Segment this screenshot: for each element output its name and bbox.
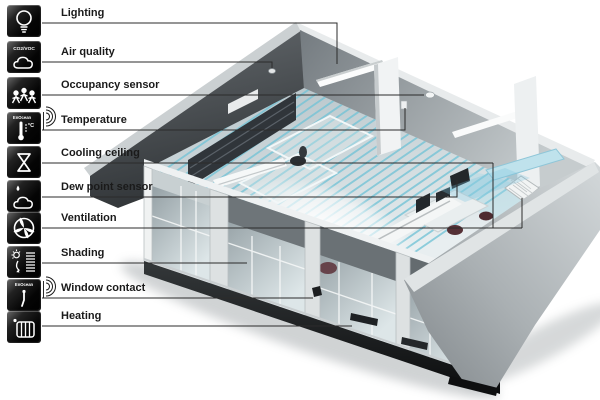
legend-tile-occupancy bbox=[7, 77, 41, 109]
legend-tile-temperature: EnOcean °C bbox=[7, 112, 41, 144]
legend-label-dew-point: Dew point sensor bbox=[61, 181, 153, 193]
legend-label-occupancy: Occupancy sensor bbox=[61, 79, 159, 91]
legend-tile-heating bbox=[7, 311, 41, 343]
legend-tile-ventilation bbox=[7, 212, 41, 244]
legend-tile-air-quality: CO2/VOC bbox=[7, 41, 41, 73]
legend-label-ventilation: Ventilation bbox=[61, 212, 117, 224]
thermostat bbox=[401, 101, 407, 109]
shading-blinds-icon bbox=[7, 246, 41, 278]
legend-label-window-contact: Window contact bbox=[61, 282, 145, 294]
legend-label-cooling-ceiling: Cooling ceiling bbox=[61, 147, 140, 159]
red-chair-behind-glass bbox=[319, 262, 337, 274]
radiator-icon bbox=[7, 311, 41, 343]
legend-label-temperature: Temperature bbox=[61, 114, 127, 126]
occupancy-people-icon bbox=[7, 77, 41, 109]
svg-text:EnOcean: EnOcean bbox=[13, 115, 32, 120]
wireless-icons bbox=[46, 107, 56, 296]
legend-label-heating: Heating bbox=[61, 310, 101, 322]
svg-text:CO2/VOC: CO2/VOC bbox=[13, 46, 35, 52]
legend-tile-lighting bbox=[7, 5, 41, 37]
air-quality-sensor-dot bbox=[269, 69, 276, 74]
room-render bbox=[0, 0, 600, 400]
legend-tile-shading bbox=[7, 246, 41, 278]
legend-tile-dew-point bbox=[7, 180, 41, 212]
building-automation-diagram: CO2/VOC EnOcean °C bbox=[0, 0, 600, 400]
legend-tile-window-contact: EnOcean bbox=[7, 279, 41, 311]
svg-text:°C: °C bbox=[28, 123, 34, 129]
wireless-icon bbox=[46, 277, 56, 296]
legend-label-shading: Shading bbox=[61, 247, 104, 259]
occupancy-sensor-dot bbox=[426, 92, 435, 98]
legend-tile-cooling-ceiling bbox=[7, 146, 41, 178]
wireless-icon bbox=[46, 107, 56, 126]
air-quality-cloud-icon: CO2/VOC bbox=[7, 41, 41, 73]
red-chair bbox=[479, 212, 493, 221]
red-chair bbox=[447, 225, 463, 235]
window-contact-icon: EnOcean bbox=[7, 279, 41, 311]
lightbulb-icon bbox=[7, 5, 41, 37]
ventilation-fan-icon bbox=[7, 212, 41, 244]
cooling-ceiling-icon bbox=[7, 146, 41, 178]
thermometer-icon: EnOcean °C bbox=[7, 112, 41, 144]
dew-point-icon bbox=[7, 180, 41, 212]
legend-label-air-quality: Air quality bbox=[61, 46, 115, 58]
legend-label-lighting: Lighting bbox=[61, 7, 104, 19]
svg-text:EnOcean: EnOcean bbox=[15, 282, 34, 287]
